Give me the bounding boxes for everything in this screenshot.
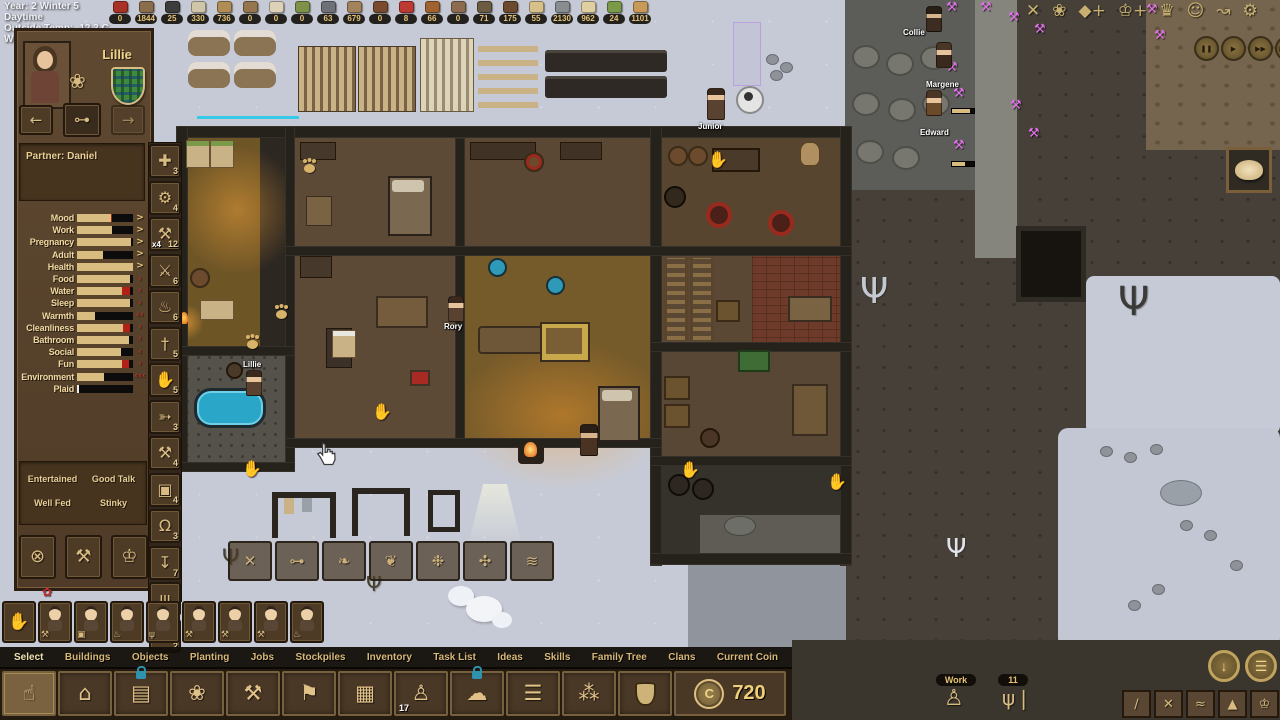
pillow — [602, 390, 632, 401]
water-plus-icon[interactable]: ◆+ — [1079, 3, 1106, 20]
plant-pot-icon[interactable]: ❀ — [1052, 3, 1066, 20]
resource-cell[interactable]: 24 — [602, 1, 626, 24]
fence[interactable] — [478, 38, 538, 108]
toolbar-button[interactable]: ♙ 17 — [394, 671, 448, 716]
cellar-stone[interactable] — [700, 515, 844, 557]
table-gold[interactable] — [540, 322, 590, 362]
rock[interactable] — [770, 70, 783, 81]
crate[interactable] — [664, 404, 690, 428]
water-pot[interactable] — [488, 258, 507, 277]
red-bowl[interactable] — [768, 210, 794, 236]
red-bowl[interactable] — [706, 202, 732, 228]
menu-tab[interactable]: Select — [14, 652, 43, 663]
resource-cell[interactable]: 55 — [524, 1, 548, 24]
job-tool-button[interactable]: ⚔ 6 — [149, 254, 181, 288]
resource-cell[interactable]: 0 — [238, 1, 262, 24]
status-effect[interactable]: Well Fed — [22, 498, 83, 513]
menu-tab[interactable]: Jobs — [251, 652, 274, 663]
resource-cell[interactable]: 0 — [264, 1, 288, 24]
job-tool-button[interactable]: † 5 — [149, 327, 181, 361]
select-hand-button[interactable]: ✋ — [2, 601, 36, 643]
character-by-fire[interactable] — [580, 424, 598, 456]
mine-pit[interactable] — [1016, 226, 1086, 302]
resource-cell[interactable]: 2130 — [550, 1, 574, 24]
branches-icon — [477, 1, 492, 13]
hunt-bow-icon: ➳ — [158, 409, 171, 425]
cook-pot[interactable] — [524, 152, 544, 172]
need-bar — [77, 287, 133, 295]
toolbar-button[interactable]: ☰ — [506, 671, 560, 716]
overlay-toggle-button[interactable]: ❦ — [369, 541, 413, 581]
toolbar-button[interactable] — [618, 671, 672, 716]
status-effect[interactable]: Stinky — [83, 498, 144, 513]
menu-tab[interactable]: Ideas — [497, 652, 523, 663]
need-row[interactable]: Pregnancy > — [19, 236, 145, 248]
hand-job-icon[interactable]: ✋ — [708, 150, 728, 169]
farm-button[interactable]: ≈ — [1186, 690, 1215, 718]
cancel-icon[interactable]: ✕ — [1026, 3, 1040, 20]
alert-flower-icon[interactable]: ✿ — [42, 586, 52, 598]
rock[interactable] — [1180, 520, 1193, 531]
boulder[interactable] — [852, 92, 880, 116]
villager-portrait-button[interactable]: ⚒ — [38, 601, 72, 643]
tool-multiplier: x4 — [152, 240, 161, 249]
menu-tab[interactable]: Objects — [132, 652, 169, 663]
stone-path[interactable] — [975, 0, 1017, 258]
wall[interactable] — [176, 346, 295, 356]
zone-marker[interactable] — [733, 22, 761, 86]
mine-marker-icon[interactable]: ⚒ — [1010, 98, 1022, 113]
log-pile[interactable] — [545, 76, 667, 98]
seed-crate[interactable] — [186, 140, 210, 168]
need-row[interactable]: Mood > — [19, 212, 145, 224]
wall[interactable] — [455, 138, 465, 442]
stone-path-bottom[interactable] — [688, 556, 846, 648]
need-suffix[interactable]: > — [133, 226, 147, 235]
pause-icon[interactable]: ❚❚ — [1194, 36, 1219, 61]
job-tool-button[interactable]: ✚ 3 — [149, 144, 181, 178]
resource-count: 0 — [239, 14, 261, 24]
fork-knife-icon[interactable]: ψ❘ — [1002, 688, 1032, 708]
sack[interactable] — [800, 142, 820, 166]
log-pile[interactable] — [545, 50, 667, 72]
crate[interactable] — [664, 376, 690, 400]
play-icon[interactable]: ▶ — [1221, 36, 1246, 61]
coin-ledger-icon[interactable]: ☰ — [1245, 650, 1277, 682]
character-lillie[interactable] — [246, 370, 262, 396]
paw-job-icon[interactable] — [247, 340, 258, 349]
toolbar-button[interactable]: ❀ — [170, 671, 224, 716]
prev-character-button[interactable]: ← — [19, 105, 53, 135]
hand-job-icon[interactable]: ✋ — [372, 402, 392, 421]
need-suffix[interactable]: ‹ — [133, 287, 147, 296]
paw-job-icon[interactable] — [276, 310, 287, 319]
need-suffix[interactable]: > — [133, 238, 147, 247]
rock-corner[interactable] — [1146, 0, 1280, 150]
villager-strip: ✋ ⚒ ▣ ♨ ψ — [2, 601, 324, 643]
need-row[interactable]: Water ‹ — [19, 285, 145, 297]
job-tool-button[interactable]: ↧ 7 — [149, 546, 181, 580]
toolbar-button[interactable]: ⌂ — [58, 671, 112, 716]
mine-marker-icon[interactable]: ⚒ — [1034, 22, 1046, 37]
character-name: Lillie — [89, 47, 145, 62]
fastest-icon[interactable]: ▶▶▶ — [1275, 36, 1280, 61]
barrel[interactable] — [688, 146, 708, 166]
job-tool-button[interactable]: ✋ 5 — [149, 363, 181, 397]
villager-portrait-button[interactable]: ⚒ — [218, 601, 252, 643]
need-label: Work — [19, 225, 77, 235]
need-row[interactable]: Social ‹ — [19, 346, 145, 358]
needs-list: Mood > Work > Pregnancy > Adult — [19, 212, 145, 395]
need-row[interactable]: Bathroom ‹ — [19, 334, 145, 346]
rock[interactable] — [1230, 560, 1243, 571]
crate[interactable] — [716, 300, 740, 322]
garden-plot[interactable] — [234, 30, 276, 56]
boulder[interactable] — [886, 52, 914, 76]
overlay-toggle-button[interactable]: ≋ — [510, 541, 554, 581]
vermin-icon: ✣ — [479, 554, 492, 569]
resource-cell[interactable]: 66 — [420, 1, 444, 24]
hanging-cloth — [284, 498, 294, 514]
dresser[interactable] — [300, 142, 336, 160]
shelf[interactable] — [560, 142, 602, 160]
panel-action-button[interactable]: ⊗ — [19, 535, 56, 579]
table[interactable] — [306, 196, 332, 226]
boulder[interactable] — [856, 140, 884, 164]
need-suffix[interactable]: ‹ — [133, 299, 147, 308]
job-tool-button[interactable]: Ω 3 — [149, 509, 181, 543]
cabinet[interactable] — [300, 256, 332, 278]
tool-count: 6 — [173, 312, 178, 322]
ladder-rack[interactable] — [664, 258, 688, 340]
status-effect[interactable]: Good Talk — [83, 474, 144, 489]
coin-panel[interactable]: C 720 — [674, 671, 786, 716]
villager-body — [120, 620, 134, 631]
clan-crest[interactable] — [111, 67, 145, 105]
resource-cell[interactable]: 63 — [316, 1, 340, 24]
job-tool-button[interactable]: ⚙ 4 — [149, 181, 181, 215]
couch[interactable] — [478, 326, 548, 354]
rack-post[interactable] — [330, 492, 336, 538]
need-suffix[interactable]: ‹ — [133, 348, 147, 357]
rock[interactable] — [1124, 452, 1137, 463]
status-effect[interactable]: Entertained — [22, 474, 83, 489]
rock-mound[interactable] — [1160, 480, 1202, 506]
need-bar — [77, 312, 133, 320]
rock[interactable] — [1150, 444, 1163, 455]
resource-count: 175 — [499, 14, 521, 24]
crate-icon: ▣ — [77, 631, 86, 640]
tree[interactable]: Ψ — [946, 536, 966, 562]
need-label: Bathroom — [19, 335, 77, 345]
watering-pot-icon: ♨ — [158, 299, 172, 315]
barrel[interactable] — [700, 428, 720, 448]
wall[interactable] — [650, 553, 852, 565]
job-tool-button[interactable]: ➳ 3 — [149, 400, 181, 434]
need-suffix[interactable]: > — [133, 214, 147, 223]
villager-portrait-button[interactable]: ▣ — [74, 601, 108, 643]
resource-cell[interactable]: 0 — [368, 1, 392, 24]
overlay-toggle-button[interactable]: ❧ — [322, 541, 366, 581]
need-suffix[interactable]: > — [133, 250, 147, 259]
crate[interactable] — [200, 300, 234, 320]
need-row[interactable]: Fun ‹ — [19, 358, 145, 370]
need-row[interactable]: Environment ‹‹‹ — [19, 370, 145, 382]
wall[interactable] — [285, 246, 852, 256]
job-tool-button[interactable]: ⚒ x4 12 — [149, 217, 181, 251]
resource-cell[interactable]: 962 — [576, 1, 600, 24]
mine-marker-icon[interactable]: ⚒ — [980, 0, 992, 15]
plant-crate[interactable] — [332, 330, 356, 358]
hand-job-icon[interactable]: ✋ — [827, 472, 847, 491]
villager-head — [265, 606, 277, 621]
need-row[interactable]: Adult > — [19, 249, 145, 261]
menu-tab[interactable]: Clans — [668, 652, 695, 663]
need-bar — [77, 360, 133, 368]
farm-button[interactable]: ▲ — [1218, 690, 1247, 718]
skewer-icon — [373, 1, 388, 13]
menu-tab[interactable]: Planting — [190, 652, 229, 663]
wall[interactable] — [176, 126, 852, 138]
plank-stack[interactable] — [358, 46, 416, 112]
work-miner-icon[interactable]: ♙ — [944, 688, 964, 710]
crown-icon[interactable]: ♛ — [1159, 3, 1174, 20]
key-permissions-button[interactable]: ⊶ — [63, 103, 101, 137]
rock[interactable] — [766, 54, 779, 65]
need-row[interactable]: Work > — [19, 224, 145, 236]
jobs-pickaxe-icon: ⚒ — [244, 683, 263, 704]
clock-line-date: Year: 2 Winter 5 Daytime — [4, 1, 110, 23]
farm-button[interactable]: ♔ — [1250, 690, 1279, 718]
need-row[interactable]: Sleep ‹ — [19, 297, 145, 309]
squirrel-toggle-icon: ❦ — [385, 554, 398, 569]
mine-marker-icon[interactable]: ⚒ — [1028, 126, 1040, 141]
green-chest[interactable] — [738, 350, 770, 372]
resource-count: 330 — [187, 14, 209, 24]
bucket[interactable] — [226, 362, 243, 379]
menu-tab[interactable]: Inventory — [367, 652, 412, 663]
snow-patch-bottomright[interactable] — [1058, 428, 1280, 648]
toolbar-button[interactable]: ⚑ — [282, 671, 336, 716]
next-character-button[interactable]: → — [111, 105, 145, 135]
need-row[interactable]: Cleanliness ‹ — [19, 322, 145, 334]
need-row[interactable]: Warmth ‹‹ — [19, 310, 145, 322]
horn-icon — [269, 1, 284, 13]
farm-button[interactable]: ∕ — [1122, 690, 1151, 718]
overlay-toggle-button[interactable]: ⊶ — [275, 541, 319, 581]
job-tool-button[interactable]: ⚒ 4 — [149, 436, 181, 470]
job-toolbar: ✚ 3 ⚙ 4 ⚒ x4 12 ⚔ 6 ♨ — [148, 142, 182, 602]
mine-marker-icon[interactable]: ⚒ — [1008, 10, 1020, 25]
need-suffix[interactable]: ‹ — [133, 360, 147, 369]
need-suffix[interactable]: ‹ — [133, 323, 147, 332]
hand-job-icon[interactable]: ✋ — [680, 460, 700, 479]
ladder-rack[interactable] — [690, 258, 714, 340]
resource-cell[interactable]: 1101 — [628, 1, 652, 24]
overlay-toggle-button[interactable]: ✣ — [463, 541, 507, 581]
toolbar-button[interactable]: ⁂ — [562, 671, 616, 716]
toolbar-badge: 17 — [399, 703, 409, 713]
toolbar-button[interactable]: ☁ — [450, 671, 504, 716]
resource-cell[interactable]: 736 — [212, 1, 236, 24]
rack-post[interactable] — [404, 488, 410, 536]
resource-count: 55 — [525, 14, 547, 24]
menu-tab[interactable]: Family Tree — [592, 652, 647, 663]
need-suffix[interactable]: ‹ — [133, 335, 147, 344]
plank-stack[interactable] — [420, 38, 474, 112]
villager-head — [85, 606, 97, 621]
menu-tab[interactable]: Buildings — [65, 652, 111, 663]
item-frame[interactable] — [1226, 147, 1272, 193]
need-suffix[interactable]: > — [133, 262, 147, 271]
garden-plot[interactable] — [188, 62, 230, 88]
resource-cell[interactable]: 71 — [472, 1, 496, 24]
villager-portrait-button[interactable]: ⚒ — [254, 601, 288, 643]
character-margene[interactable] — [936, 42, 952, 68]
drying-rack[interactable] — [352, 488, 410, 494]
seed-crate[interactable] — [210, 140, 234, 168]
boulder[interactable] — [888, 98, 916, 122]
overlay-toggle-button[interactable]: ❉ — [416, 541, 460, 581]
crown-plus-icon[interactable]: ♔+ — [1118, 3, 1147, 20]
villager-portrait-button[interactable]: ♨ — [110, 601, 144, 643]
toolbar-button[interactable]: ⚒ — [226, 671, 280, 716]
snow-patch-right[interactable] — [1086, 276, 1280, 434]
resource-cell[interactable]: 0 — [290, 1, 314, 24]
paw-job-icon[interactable] — [304, 164, 315, 173]
job-tool-button[interactable]: ♨ 6 — [149, 290, 181, 324]
toolbar-button[interactable]: ▦ — [338, 671, 392, 716]
water-channel[interactable] — [197, 116, 299, 119]
need-bar — [77, 348, 133, 356]
hand-job-icon[interactable]: ✋ — [242, 459, 262, 478]
name-label: Margene — [926, 80, 959, 89]
overlay-toggle-button[interactable]: ✕ — [228, 541, 272, 581]
resource-cell[interactable]: 679 — [342, 1, 366, 24]
clans-icon — [635, 682, 656, 706]
mine-marker-icon[interactable]: ⚒ — [953, 138, 965, 153]
familytree-icon: ⁂ — [579, 683, 600, 704]
hare-icon: ❧ — [338, 554, 351, 569]
rock[interactable] — [780, 62, 793, 73]
panel-action-button[interactable]: ⚒ — [65, 535, 102, 579]
tool-count: 4 — [173, 203, 178, 213]
need-label: Environment — [19, 372, 77, 382]
gather-hand-icon: ✋ — [155, 372, 175, 388]
rock-pile[interactable] — [724, 516, 756, 536]
menu-tab[interactable]: Task List — [433, 652, 476, 663]
villager-body — [156, 620, 170, 631]
wall[interactable] — [285, 126, 295, 472]
need-bar — [77, 238, 133, 246]
tree[interactable]: Ψ — [860, 274, 888, 310]
need-bar — [77, 324, 133, 332]
resource-count: 0 — [265, 14, 287, 24]
character-collie[interactable] — [926, 6, 942, 32]
resource-cell[interactable]: 330 — [186, 1, 210, 24]
fast-icon[interactable]: ▶▶ — [1248, 36, 1273, 61]
resource-cell[interactable]: 0 — [108, 1, 132, 24]
table[interactable] — [376, 296, 428, 328]
table[interactable] — [788, 296, 832, 322]
portrait-frame[interactable] — [23, 41, 71, 109]
rock[interactable] — [1152, 584, 1165, 595]
happiness-icon[interactable]: ☺ — [1187, 3, 1205, 20]
resource-cell[interactable]: 25 — [160, 1, 184, 24]
menu-tab[interactable]: Stockpiles — [295, 652, 345, 663]
character-rory[interactable] — [448, 296, 464, 322]
mine-marker-icon[interactable]: ⚒ — [1154, 28, 1166, 43]
rock[interactable] — [1100, 446, 1113, 457]
need-label: Water — [19, 286, 77, 296]
need-row[interactable]: Health > — [19, 261, 145, 273]
garden-plot[interactable] — [234, 62, 276, 88]
villager-portrait-button[interactable]: ψ — [146, 601, 180, 643]
mine-marker-icon[interactable]: ⚒ — [946, 0, 958, 15]
boulder[interactable] — [852, 45, 880, 69]
boulder[interactable] — [892, 146, 920, 170]
barrel[interactable] — [668, 146, 688, 166]
need-label: Health — [19, 262, 77, 272]
coin-down-icon[interactable]: ↓ — [1208, 650, 1240, 682]
workbench[interactable] — [792, 384, 828, 436]
menu-tab[interactable]: Current Coin — [717, 652, 778, 663]
need-suffix[interactable]: ‹‹ — [133, 311, 147, 320]
dark-pot[interactable] — [664, 186, 686, 208]
profession-plant-icon[interactable]: ❀ — [69, 71, 86, 91]
plank-stack[interactable] — [298, 46, 356, 112]
need-label: Fun — [19, 359, 77, 369]
lock-icon — [136, 671, 146, 679]
resource-cell[interactable]: 8 — [394, 1, 418, 24]
villager-portrait-button[interactable]: ⚒ — [182, 601, 216, 643]
rack-post[interactable] — [272, 492, 278, 538]
aid-marker[interactable] — [412, 372, 428, 384]
frame-structure[interactable] — [428, 490, 460, 532]
rack-post[interactable] — [352, 488, 358, 536]
resource-cell[interactable]: 0 — [446, 1, 470, 24]
villager-portrait-button[interactable]: ♨ — [290, 601, 324, 643]
need-row[interactable]: Food ‹ — [19, 273, 145, 285]
settings-gear-icon[interactable]: ⚙ — [1243, 3, 1258, 20]
need-suffix[interactable]: ‹ — [133, 275, 147, 284]
job-tool-button[interactable]: ▣ 4 — [149, 473, 181, 507]
garden-plot[interactable] — [188, 30, 230, 56]
toolbar-button[interactable]: ▤ — [114, 671, 168, 716]
toolbar-button[interactable]: ☝ — [2, 671, 56, 716]
need-suffix[interactable]: ‹‹‹ — [133, 372, 147, 381]
route-icon[interactable]: ↝ — [1216, 3, 1230, 20]
rock[interactable] — [1204, 530, 1217, 541]
panel-action-button[interactable]: ♔ — [111, 535, 148, 579]
character-edward[interactable] — [926, 90, 942, 116]
need-row[interactable]: Plaid — [19, 383, 145, 395]
resource-cell[interactable]: 1844 — [134, 1, 158, 24]
snow-pile[interactable] — [492, 612, 512, 628]
barrel[interactable] — [692, 478, 714, 500]
water-pot[interactable] — [546, 276, 565, 295]
farm-button[interactable]: ✕ — [1154, 690, 1183, 718]
character-junior[interactable] — [707, 88, 725, 120]
resource-cell[interactable]: 175 — [498, 1, 522, 24]
panel-action-buttons: ⊗ ⚒ ♔ — [19, 535, 148, 579]
tool-count: 5 — [173, 385, 178, 395]
wall[interactable] — [176, 462, 295, 472]
menu-tab[interactable]: Skills — [544, 652, 570, 663]
rock[interactable] — [1128, 600, 1141, 611]
barrel[interactable] — [190, 268, 210, 288]
tree[interactable]: Ψ — [1118, 282, 1149, 322]
